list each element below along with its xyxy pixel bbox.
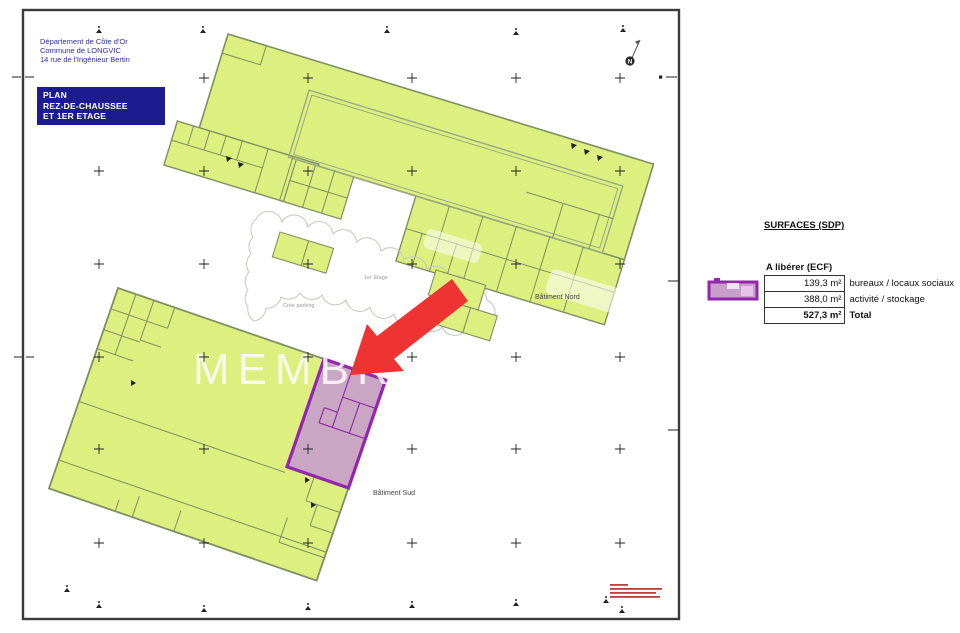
table-row: 139,3 m² bureaux / locaux sociaux <box>765 276 956 292</box>
edge-square-mark <box>659 76 662 79</box>
legend: SURFACES (SDP) A libérer (ECF) 139,3 m² … <box>700 218 956 336</box>
surfaces-table: 139,3 m² bureaux / locaux sociaux 388,0 … <box>764 275 956 324</box>
table-row-total: 527,3 m² Total <box>765 308 956 324</box>
surface-label: Total <box>845 308 956 324</box>
page: { "header": { "line1": "Département de C… <box>0 0 960 633</box>
surface-value: 527,3 m² <box>765 308 845 324</box>
header-line-1: Département de Côte d'Or <box>40 37 130 46</box>
surface-value: 388,0 m² <box>765 292 845 308</box>
plan-title-line-3: ET 1ER ETAGE <box>43 111 159 122</box>
highlight-swatch-icon <box>707 278 759 302</box>
legend-subtitle: A libérer (ECF) <box>766 262 832 273</box>
header-line-3: 14 rue de l'Ingénieur Bertin <box>40 55 130 64</box>
plan-title-line-2: REZ-DE-CHAUSSEE <box>43 101 159 112</box>
legend-title: SURFACES (SDP) <box>764 220 844 231</box>
plan-title-box: PLAN REZ-DE-CHAUSSEE ET 1ER ETAGE <box>37 87 165 125</box>
parking-label: Crée parking <box>283 303 315 309</box>
first-floor-label: 1er Etage <box>364 275 388 281</box>
drawing-header: Département de Côte d'Or Commune de LONG… <box>40 37 130 64</box>
surface-label: bureaux / locaux sociaux <box>845 276 956 292</box>
north-label: N <box>628 58 633 65</box>
table-row: 388,0 m² activité / stockage <box>765 292 956 308</box>
building-north-label: Bâtiment Nord <box>535 294 580 301</box>
surface-label: activité / stockage <box>845 292 956 308</box>
building-south-label: Bâtiment Sud <box>373 490 415 497</box>
plan-title-line-1: PLAN <box>43 90 159 101</box>
header-line-2: Commune de LONGVIC <box>40 46 130 55</box>
surface-value: 139,3 m² <box>765 276 845 292</box>
